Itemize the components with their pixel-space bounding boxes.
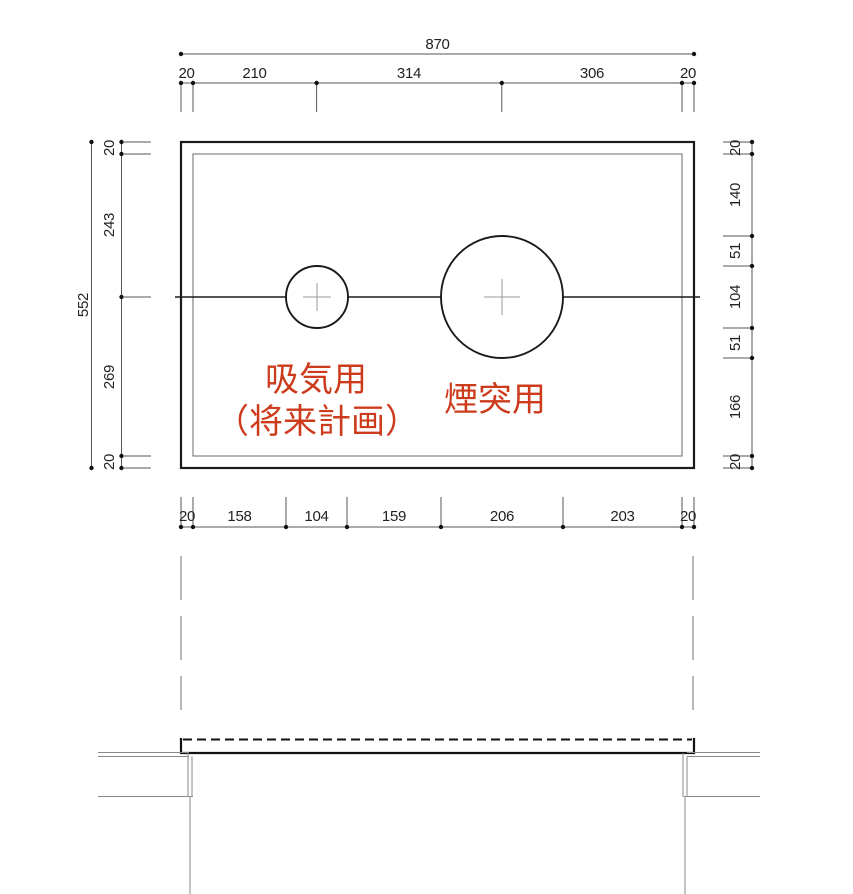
tick-dot xyxy=(119,140,123,144)
tick-dot xyxy=(750,234,754,238)
dim-text-right: 104 xyxy=(727,285,744,309)
dim-text-top: 20 xyxy=(178,65,194,82)
dim-text-top: 314 xyxy=(397,65,421,82)
dim-text-bottom: 158 xyxy=(227,508,251,525)
chimney-label: 煙突用 xyxy=(444,381,546,419)
section-view xyxy=(98,738,760,894)
tick-dot xyxy=(119,454,123,458)
projection-lines xyxy=(181,556,693,710)
dim-text-top: 306 xyxy=(580,65,604,82)
tick-dot xyxy=(750,152,754,156)
intake-label-line2: （将来計画） xyxy=(215,403,419,441)
dim-text-right: 20 xyxy=(727,140,744,156)
cad-drawing-svg: 870 20 210 314 306 20 552 20 243 269 20 xyxy=(0,0,853,894)
tick-dot xyxy=(89,140,93,144)
dim-text-overall-width: 870 xyxy=(425,36,449,53)
tick-dot xyxy=(750,454,754,458)
dim-text-right: 51 xyxy=(727,243,744,259)
tick-dot xyxy=(345,525,349,529)
tick-dot xyxy=(500,81,504,85)
left-dimensions xyxy=(89,140,151,470)
dim-text-top: 20 xyxy=(680,65,696,82)
tick-dot xyxy=(561,525,565,529)
dim-text-left: 269 xyxy=(101,365,118,389)
dim-text-left: 243 xyxy=(101,213,118,237)
tick-dot xyxy=(119,152,123,156)
tick-dot xyxy=(692,525,696,529)
tick-dot xyxy=(439,525,443,529)
drawing-canvas: 870 20 210 314 306 20 552 20 243 269 20 xyxy=(0,0,853,894)
dim-text-right: 166 xyxy=(727,395,744,419)
tick-dot xyxy=(750,466,754,470)
tick-dot xyxy=(314,81,318,85)
dim-text-bottom: 159 xyxy=(382,508,406,525)
dim-text-right: 140 xyxy=(727,183,744,207)
dim-text-right: 20 xyxy=(727,454,744,470)
dim-text-left: 20 xyxy=(101,454,118,470)
tick-dot xyxy=(284,525,288,529)
dim-text-bottom: 203 xyxy=(610,508,634,525)
tick-dot xyxy=(692,52,696,56)
tick-dot xyxy=(179,525,183,529)
tick-dot xyxy=(89,466,93,470)
tick-dot xyxy=(119,295,123,299)
tick-dot xyxy=(750,326,754,330)
dim-text-bottom: 20 xyxy=(179,508,195,525)
intake-label-line1: 吸気用 xyxy=(265,361,367,399)
dim-text-right: 51 xyxy=(727,335,744,351)
tick-dot xyxy=(750,264,754,268)
dim-text-left: 20 xyxy=(101,140,118,156)
dim-text-overall-height: 552 xyxy=(75,293,92,317)
tick-dot xyxy=(191,525,195,529)
tick-dot xyxy=(179,52,183,56)
dim-text-bottom: 104 xyxy=(304,508,328,525)
dim-text-bottom: 20 xyxy=(680,508,696,525)
dim-text-top: 210 xyxy=(242,65,266,82)
tick-dot xyxy=(119,466,123,470)
dim-text-bottom: 206 xyxy=(490,508,514,525)
tick-dot xyxy=(680,525,684,529)
tick-dot xyxy=(750,356,754,360)
tick-dot xyxy=(750,140,754,144)
